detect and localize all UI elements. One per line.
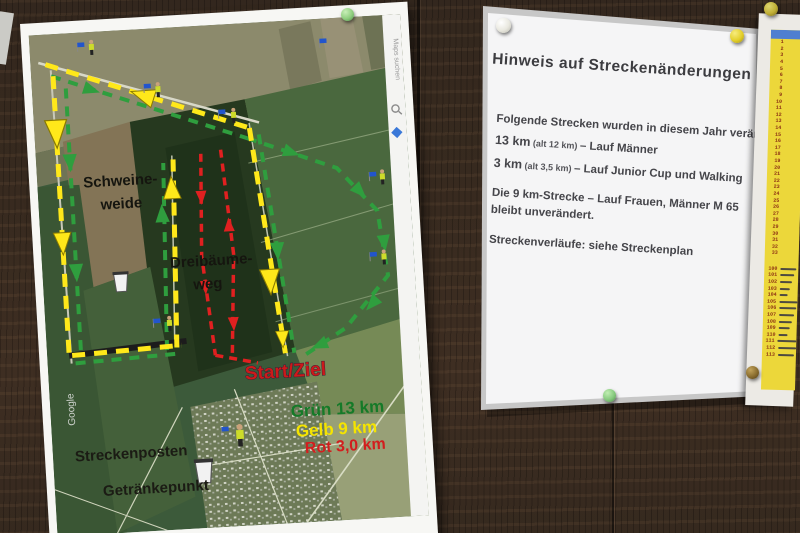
runner-name-illegible	[779, 307, 796, 309]
start-number: 28	[766, 217, 779, 223]
area-label-dreibaeumeweg-2: weg	[192, 275, 223, 294]
runner-name-illegible	[780, 288, 790, 290]
route-legend: Grün 13 km Gelb 9 km Rot 3,0 km	[290, 397, 387, 458]
start-number: 100	[764, 265, 777, 271]
start-number: 32	[765, 243, 778, 249]
start-number: 5	[770, 65, 783, 71]
runner-name-illegible	[779, 327, 790, 329]
start-number: 101	[764, 272, 777, 278]
pushpin-brass	[746, 366, 759, 379]
runner-name-illegible	[780, 274, 794, 276]
start-number: 112	[762, 344, 775, 350]
start-number: 6	[770, 72, 783, 78]
pushpin-green-bottom	[603, 389, 616, 402]
start-number: 25	[766, 197, 779, 203]
runner-name-illegible	[778, 334, 787, 336]
start-number: 29	[765, 223, 778, 229]
start-number: 105	[763, 298, 776, 304]
start-number: 20	[767, 164, 780, 170]
start-number: 19	[767, 158, 780, 164]
start-number: 9	[769, 92, 782, 98]
runner-name-illegible	[779, 314, 794, 316]
start-number: 111	[762, 338, 774, 344]
start-number: 22	[767, 177, 780, 183]
start-number: 30	[765, 230, 778, 236]
start-number: 16	[768, 138, 781, 144]
start-number: 8	[769, 85, 782, 91]
pushpin-green-top	[341, 8, 354, 21]
runner-name-illegible	[778, 354, 794, 356]
start-number: 104	[764, 292, 777, 298]
notice-sheet: Hinweis auf Streckenänderungen Folgende …	[470, 0, 772, 422]
runner-name-illegible	[779, 321, 792, 323]
start-number: 106	[763, 305, 776, 311]
start-list-row: 113	[762, 351, 796, 359]
board-edge-highlight	[0, 11, 14, 65]
runner-name-illegible	[780, 294, 788, 296]
start-number: 103	[764, 285, 777, 291]
pushpin-yellow	[730, 29, 744, 43]
start-number: 31	[765, 237, 778, 243]
satellite-route-map: Schweine- weide Dreibäume- weg Start/Zie…	[29, 14, 429, 533]
area-label-schweineweide-2: weide	[99, 194, 143, 213]
start-number: 26	[766, 204, 779, 210]
pushpin-olive	[764, 2, 778, 16]
start-number: 113	[762, 351, 775, 357]
start-number: 24	[766, 190, 779, 196]
start-number: 14	[768, 125, 781, 131]
runner-name-illegible	[780, 281, 792, 283]
start-number: 21	[767, 171, 780, 177]
start-number: 3	[770, 52, 783, 58]
start-number: 18	[767, 151, 780, 157]
start-number: 107	[763, 312, 776, 318]
runner-name-illegible	[778, 340, 797, 343]
bulletin-board-photo: Schweine- weide Dreibäume- weg Start/Zie…	[0, 0, 800, 533]
start-number: 27	[766, 210, 779, 216]
runner-name-illegible	[780, 268, 796, 270]
runner-name-illegible	[779, 301, 797, 304]
start-number: 15	[768, 131, 781, 137]
start-number: 7	[770, 78, 783, 84]
start-number: 13	[768, 118, 781, 124]
start-number: 108	[763, 318, 776, 324]
start-number: 23	[767, 184, 780, 190]
start-number: 109	[763, 325, 776, 331]
route-map-poster: Schweine- weide Dreibäume- weg Start/Zie…	[20, 2, 439, 533]
start-number: 4	[770, 59, 783, 65]
start-number: 1	[771, 39, 784, 45]
start-number: 33	[765, 250, 778, 256]
runner-name-illegible	[778, 347, 796, 350]
start-number: 17	[768, 144, 781, 150]
google-watermark: Google	[65, 393, 78, 426]
start-number: 110	[762, 331, 775, 337]
start-number: 2	[770, 45, 783, 51]
pushpin-white	[496, 18, 511, 33]
start-number: 11	[769, 105, 782, 111]
start-number: 102	[764, 279, 777, 285]
start-number: 10	[769, 98, 782, 104]
start-number: 12	[769, 111, 782, 117]
